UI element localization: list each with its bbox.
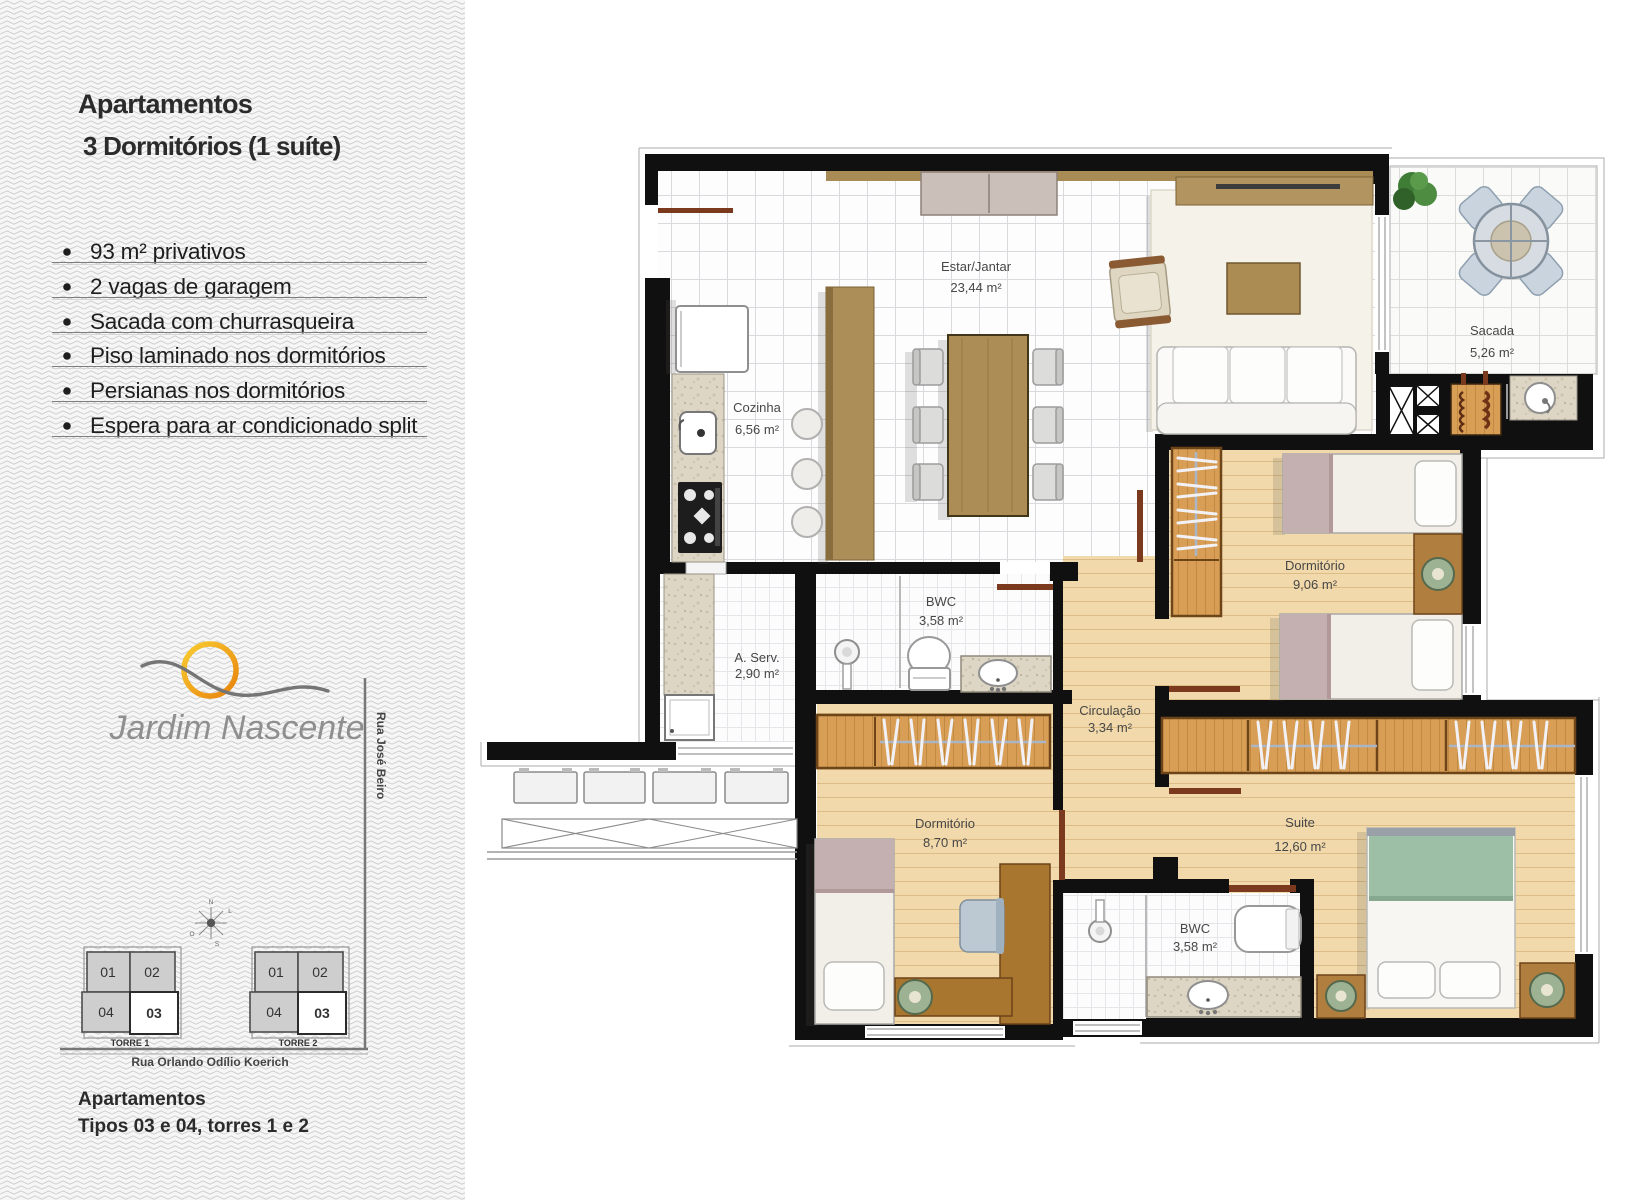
svg-text:BWC: BWC [1180,921,1210,936]
svg-text:Rua José Beiro: Rua José Beiro [374,712,388,799]
svg-text:N: N [209,899,214,906]
svg-text:A. Serv.: A. Serv. [734,650,779,665]
svg-text:23,44 m²: 23,44 m² [950,280,1002,295]
svg-text:6,56 m²: 6,56 m² [735,422,780,437]
svg-text:L: L [228,908,232,915]
svg-text:2 vagas de garagem: 2 vagas de garagem [90,274,292,299]
svg-text:01: 01 [268,964,284,980]
svg-text:8,70 m²: 8,70 m² [923,835,968,850]
svg-text:9,06 m²: 9,06 m² [1293,577,1338,592]
svg-text:03: 03 [146,1005,162,1021]
svg-text:Espera para ar condicionado sp: Espera para ar condicionado split [90,413,418,438]
svg-text:Piso laminado nos dormitórios: Piso laminado nos dormitórios [90,343,386,368]
svg-text:12,60 m²: 12,60 m² [1274,839,1326,854]
svg-text:BWC: BWC [926,594,956,609]
svg-text:Sacada com churrasqueira: Sacada com churrasqueira [90,309,355,334]
svg-text:01: 01 [100,964,116,980]
svg-text:Circulação: Circulação [1079,703,1140,718]
svg-text:Persianas nos dormitórios: Persianas nos dormitórios [90,378,345,403]
svg-text:04: 04 [98,1004,114,1020]
svg-text:Suite: Suite [1285,815,1315,830]
svg-text:3,58 m²: 3,58 m² [1173,939,1218,954]
svg-text:2,90 m²: 2,90 m² [735,666,780,681]
svg-text:Tipos 03 e 04, torres 1 e 2: Tipos 03 e 04, torres 1 e 2 [78,1116,309,1137]
svg-text:TORRE 1: TORRE 1 [111,1038,150,1048]
svg-text:Estar/Jantar: Estar/Jantar [941,259,1012,274]
svg-text:02: 02 [144,964,160,980]
svg-text:Apartamentos: Apartamentos [78,89,252,119]
svg-text:93 m² privativos: 93 m² privativos [90,239,246,264]
svg-text:Dormitório: Dormitório [1285,558,1345,573]
svg-text:O: O [189,931,194,938]
svg-text:02: 02 [312,964,328,980]
svg-text:Cozinha: Cozinha [733,400,781,415]
svg-text:Rua Orlando Odílio Koerich: Rua Orlando Odílio Koerich [131,1055,288,1069]
svg-text:S: S [215,941,220,948]
svg-text:TORRE 2: TORRE 2 [279,1038,318,1048]
svg-text:5,26 m²: 5,26 m² [1470,345,1515,360]
svg-text:04: 04 [266,1004,282,1020]
svg-text:3 Dormitórios (1 suíte): 3 Dormitórios (1 suíte) [83,131,341,161]
svg-text:Apartamentos: Apartamentos [78,1089,206,1110]
svg-text:Sacada: Sacada [1470,323,1515,338]
svg-text:Dormitório: Dormitório [915,816,975,831]
svg-text:03: 03 [314,1005,330,1021]
svg-text:3,58 m²: 3,58 m² [919,613,964,628]
svg-text:Jardim Nascente: Jardim Nascente [108,709,364,747]
svg-text:3,34 m²: 3,34 m² [1088,720,1133,735]
